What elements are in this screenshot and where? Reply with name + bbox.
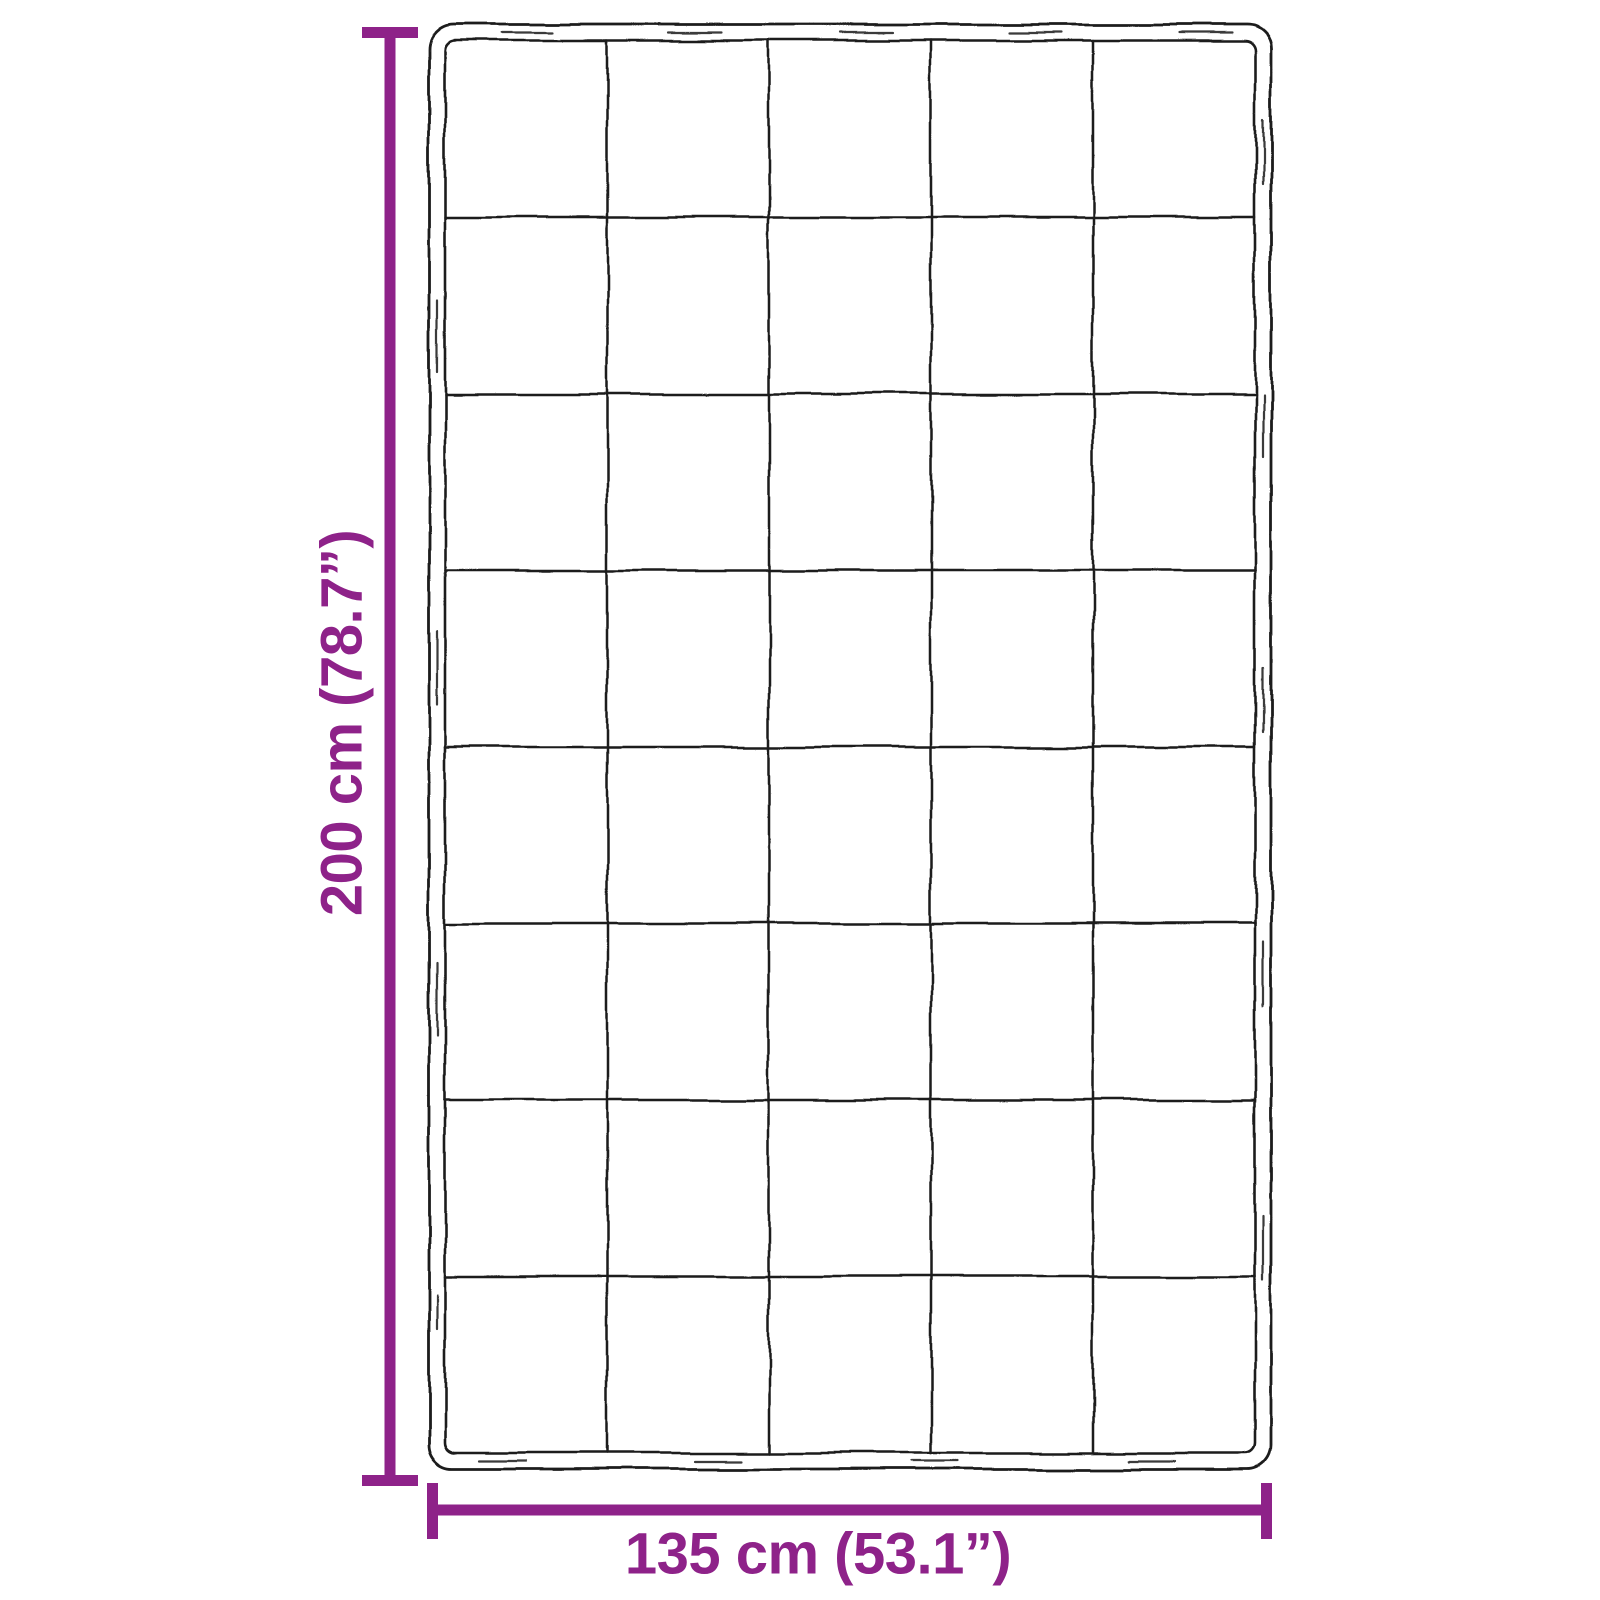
height-dimension-label: 200 cm (78.7”) (309, 530, 376, 916)
dimension-diagram: 200 cm (78.7”) 135 cm (53.1”) (0, 0, 1600, 1600)
measurement-lines (0, 0, 1600, 1600)
width-dimension-label: 135 cm (53.1”) (625, 1521, 1011, 1588)
